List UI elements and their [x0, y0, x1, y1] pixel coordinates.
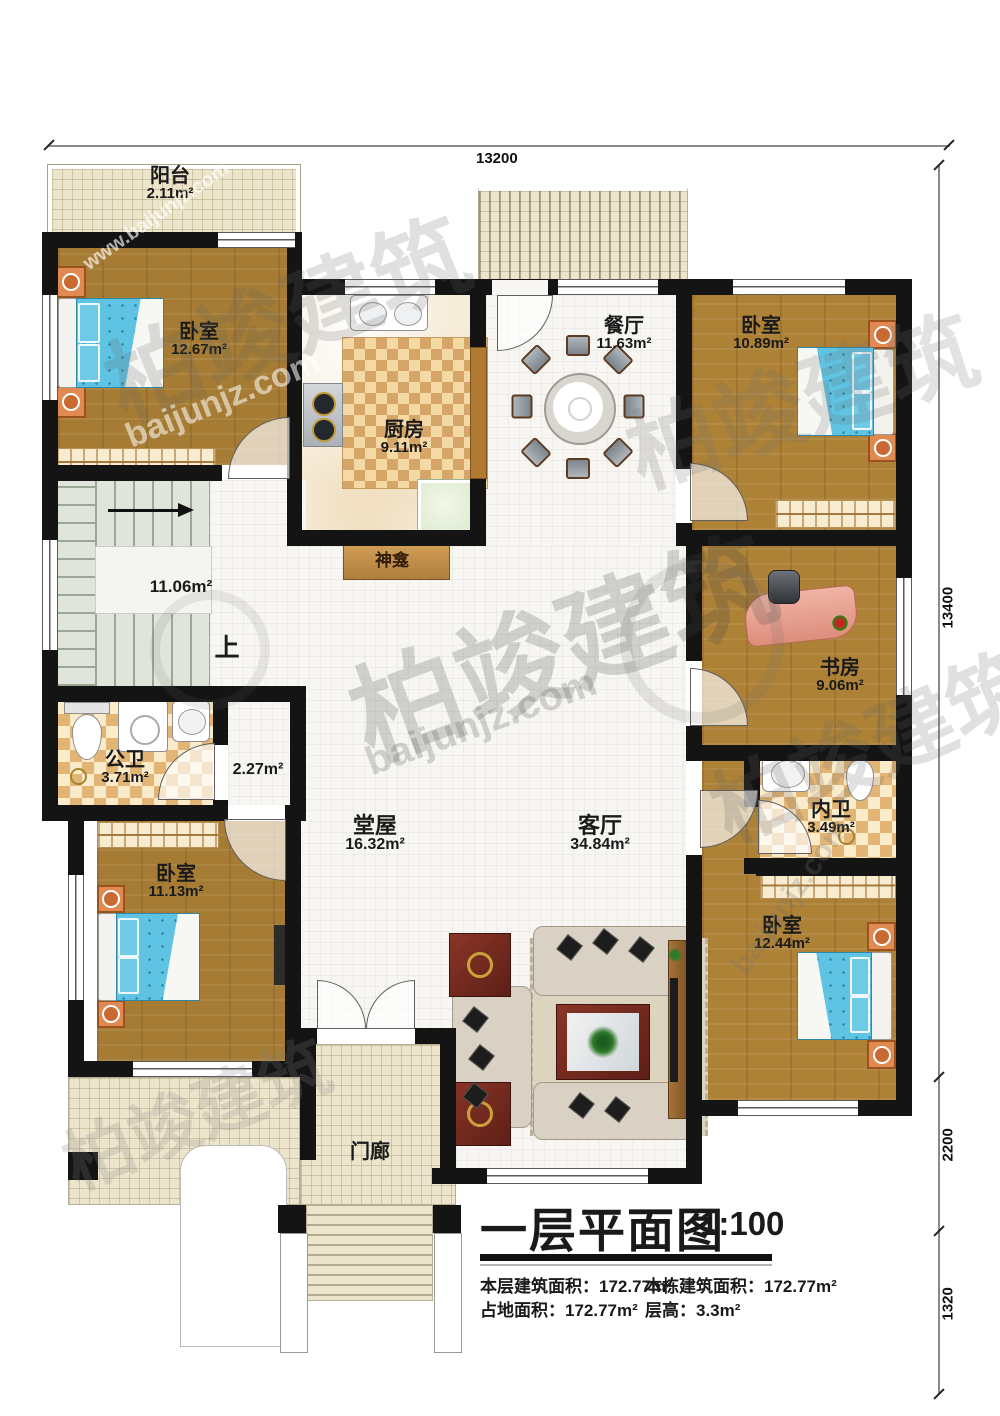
pillow [850, 957, 870, 996]
dim-line-top [48, 145, 950, 147]
room-area: 11.63m² [596, 336, 651, 351]
room-area: 3.49m² [807, 820, 855, 835]
dining-chair [566, 335, 590, 356]
wall [42, 805, 225, 821]
nightstand [97, 1000, 125, 1028]
bed-sheet [798, 953, 831, 1039]
room-label-balcony: 阳台 2.11m² [147, 166, 194, 201]
room-label-bedroom-br: 卧室 12.44m² [754, 916, 810, 951]
wall [415, 1028, 456, 1044]
room-label-dining: 餐厅 11.63m² [596, 316, 651, 351]
room-name: 阳台 [147, 166, 194, 186]
stair-treads-lower [95, 612, 210, 686]
dining-window [558, 279, 658, 295]
room-name: 卧室 [148, 864, 203, 884]
room-label-bedroom-tr: 卧室 10.89m² [733, 316, 789, 351]
desk-flower [832, 615, 848, 631]
wall [285, 805, 301, 1077]
wall [42, 465, 222, 481]
room-label-bath-private: 内卫 3.49m² [807, 800, 855, 835]
pillow [852, 392, 872, 430]
kitchen-cabinet [418, 480, 476, 534]
bedroom-bl-window-left [68, 875, 84, 1000]
wall [676, 530, 912, 546]
pilaster-right [434, 1233, 462, 1353]
stat-land-area: 占地面积：172.77m² [480, 1296, 638, 1321]
title-underline-thin [480, 1264, 772, 1266]
toilet [64, 702, 110, 714]
room-label-bedroom-tl: 卧室 12.67m² [171, 322, 227, 357]
room-area: 11.06m² [150, 578, 212, 595]
stat-floor-area: 本层建筑面积：172.77m² [480, 1272, 672, 1297]
pillow [850, 996, 870, 1033]
wall [686, 546, 702, 661]
room-area: 16.32m² [345, 837, 405, 853]
room-name: 神龛 [375, 552, 409, 569]
room-name: 公卫 [101, 750, 149, 770]
hallway-floor [228, 686, 290, 805]
room-label-study: 书房 9.06m² [816, 658, 864, 693]
bedroom-tl-window [42, 295, 58, 400]
room-name: 门廊 [350, 1142, 390, 1162]
nightstand [868, 433, 897, 462]
plan-title: 一层平面图 [480, 1192, 725, 1261]
nightstand [867, 1040, 896, 1069]
walkway [180, 1145, 287, 1347]
dining-door-gap [492, 280, 548, 295]
wall [213, 686, 228, 745]
wall [213, 800, 228, 821]
bed-headboard [98, 913, 118, 1001]
kitchen-sliding-door [470, 347, 487, 479]
room-label-living: 客厅 34.84m² [570, 815, 630, 853]
wall [440, 1044, 456, 1168]
sink-basin [178, 709, 206, 735]
wardrobe [775, 500, 896, 528]
nightstand [56, 386, 86, 418]
room-area: 11.13m² [148, 884, 203, 899]
wall [300, 1044, 316, 1160]
study-window [896, 578, 912, 695]
column [68, 1152, 98, 1180]
wall [300, 1028, 317, 1044]
wall [676, 279, 692, 469]
dining-chair [566, 458, 590, 479]
room-area: 2.11m² [147, 186, 194, 201]
plan-scale: 1:100 [700, 1205, 784, 1243]
table-center [568, 397, 592, 421]
living-window [487, 1168, 648, 1184]
bed-sheet [798, 348, 832, 435]
side-table-lamp [449, 933, 511, 997]
room-area: 9.11m² [381, 440, 428, 455]
wall [896, 279, 912, 1116]
tv-panel [274, 925, 285, 985]
sink-basin [771, 760, 805, 788]
shrine-label: 神龛 [375, 552, 409, 569]
kitchen-sink [350, 295, 428, 331]
room-name: 内卫 [807, 800, 855, 820]
dim-line-right [938, 165, 940, 1394]
terrace-floor [478, 187, 688, 281]
tv-plant [668, 948, 682, 962]
wall [470, 279, 486, 349]
wall [42, 686, 306, 702]
bed-sheet [124, 299, 163, 387]
porch-steps [306, 1205, 433, 1301]
room-label-bath-public: 公卫 3.71m² [101, 750, 149, 785]
stair-area-label: 11.06m² [150, 578, 212, 595]
stair-up-label: 上 [214, 636, 239, 661]
room-area: 3.71m² [101, 770, 149, 785]
burner [312, 418, 336, 442]
dining-chair [512, 395, 533, 419]
washer-drum [130, 715, 160, 745]
wall [287, 530, 486, 546]
room-label-kitchen: 厨房 9.11m² [381, 420, 428, 455]
porch-column-right [433, 1205, 461, 1233]
dining-table [544, 373, 616, 445]
dim-top-value: 13200 [476, 150, 518, 167]
bedroom-tr-window [733, 279, 845, 295]
room-label-porch: 门廊 [350, 1142, 390, 1162]
bedroom-bl-window-south [133, 1061, 252, 1077]
pillow [118, 957, 139, 994]
bed-headboard [58, 298, 78, 388]
room-area: 10.89m² [733, 336, 789, 351]
dining-chair [624, 395, 645, 419]
tv-screen [670, 978, 678, 1082]
coffee-table [556, 1004, 650, 1080]
room-area: 12.44m² [754, 936, 810, 951]
pillow [78, 303, 100, 343]
bath-sink [172, 700, 210, 742]
kitchen-rug [342, 337, 488, 489]
nightstand [56, 266, 86, 298]
bed-sheet [162, 914, 199, 1000]
nightstand [867, 922, 896, 951]
wall [686, 855, 702, 1184]
plant [587, 1026, 619, 1058]
porch-column-left [278, 1205, 306, 1233]
bed-headboard [872, 349, 894, 435]
nightstand [97, 885, 125, 913]
room-name: 餐厅 [596, 316, 651, 336]
desk-chair [768, 570, 800, 604]
stair-up-arrowhead [178, 503, 194, 517]
up-text: 上 [214, 636, 239, 661]
sink-bowl [394, 302, 422, 326]
stat-building-area: 本栋建筑面积：172.77m² [645, 1272, 837, 1297]
wall [287, 232, 302, 546]
washing-machine [118, 700, 168, 752]
bed-headboard [870, 952, 892, 1040]
stair-window [42, 540, 58, 650]
room-name: 卧室 [171, 322, 227, 342]
dim-right-low: 1320 [940, 1287, 957, 1320]
room-name: 厨房 [381, 420, 428, 440]
dim-right-mid: 2200 [940, 1128, 957, 1161]
room-name: 卧室 [733, 316, 789, 336]
floor-drain [70, 768, 87, 785]
stove [303, 383, 343, 447]
room-name: 堂屋 [345, 815, 405, 837]
room-name: 卧室 [754, 916, 810, 936]
stat-floor-height: 层高：3.3m² [645, 1296, 740, 1321]
wall [470, 477, 486, 546]
wall [756, 860, 912, 876]
bedroom-br-window [738, 1100, 858, 1116]
kitchen-window [345, 279, 435, 295]
floor-plan: 阳台 2.11m² 卧室 12.67m² 厨房 9.11m² 餐厅 11.63m… [0, 0, 1000, 1416]
wardrobe [760, 872, 896, 899]
title-underline [480, 1254, 772, 1261]
dim-right-main: 13400 [940, 587, 957, 629]
pillow [118, 918, 139, 957]
wall [686, 745, 912, 761]
room-name: 客厅 [570, 815, 630, 837]
pillow [852, 352, 872, 392]
stair-treads-left [58, 480, 95, 686]
room-name: 书房 [816, 658, 864, 678]
pillow [78, 344, 100, 382]
room-area: 2.27m² [233, 762, 284, 778]
balcony-slider-window [218, 232, 295, 248]
hallway-area-label: 2.27m² [233, 762, 284, 778]
wall [290, 686, 306, 821]
stair-up-arrow [108, 509, 180, 512]
nightstand [868, 320, 897, 349]
room-label-main-hall: 堂屋 16.32m² [345, 815, 405, 853]
wardrobe [97, 822, 219, 848]
pilaster-left [280, 1233, 308, 1353]
burner [312, 392, 336, 416]
room-area: 12.67m² [171, 342, 227, 357]
room-area: 9.06m² [816, 678, 864, 693]
sink-bowl [359, 302, 387, 326]
room-area: 34.84m² [570, 837, 630, 853]
room-label-bedroom-bl: 卧室 11.13m² [148, 864, 203, 899]
wall [42, 686, 58, 819]
